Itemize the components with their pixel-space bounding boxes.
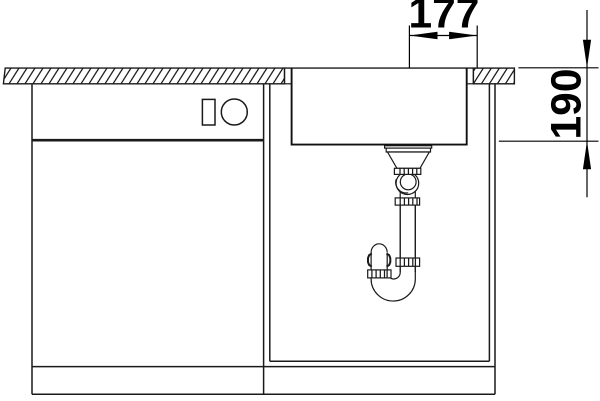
svg-text:190: 190 [544, 69, 591, 140]
svg-text:177: 177 [409, 0, 480, 38]
